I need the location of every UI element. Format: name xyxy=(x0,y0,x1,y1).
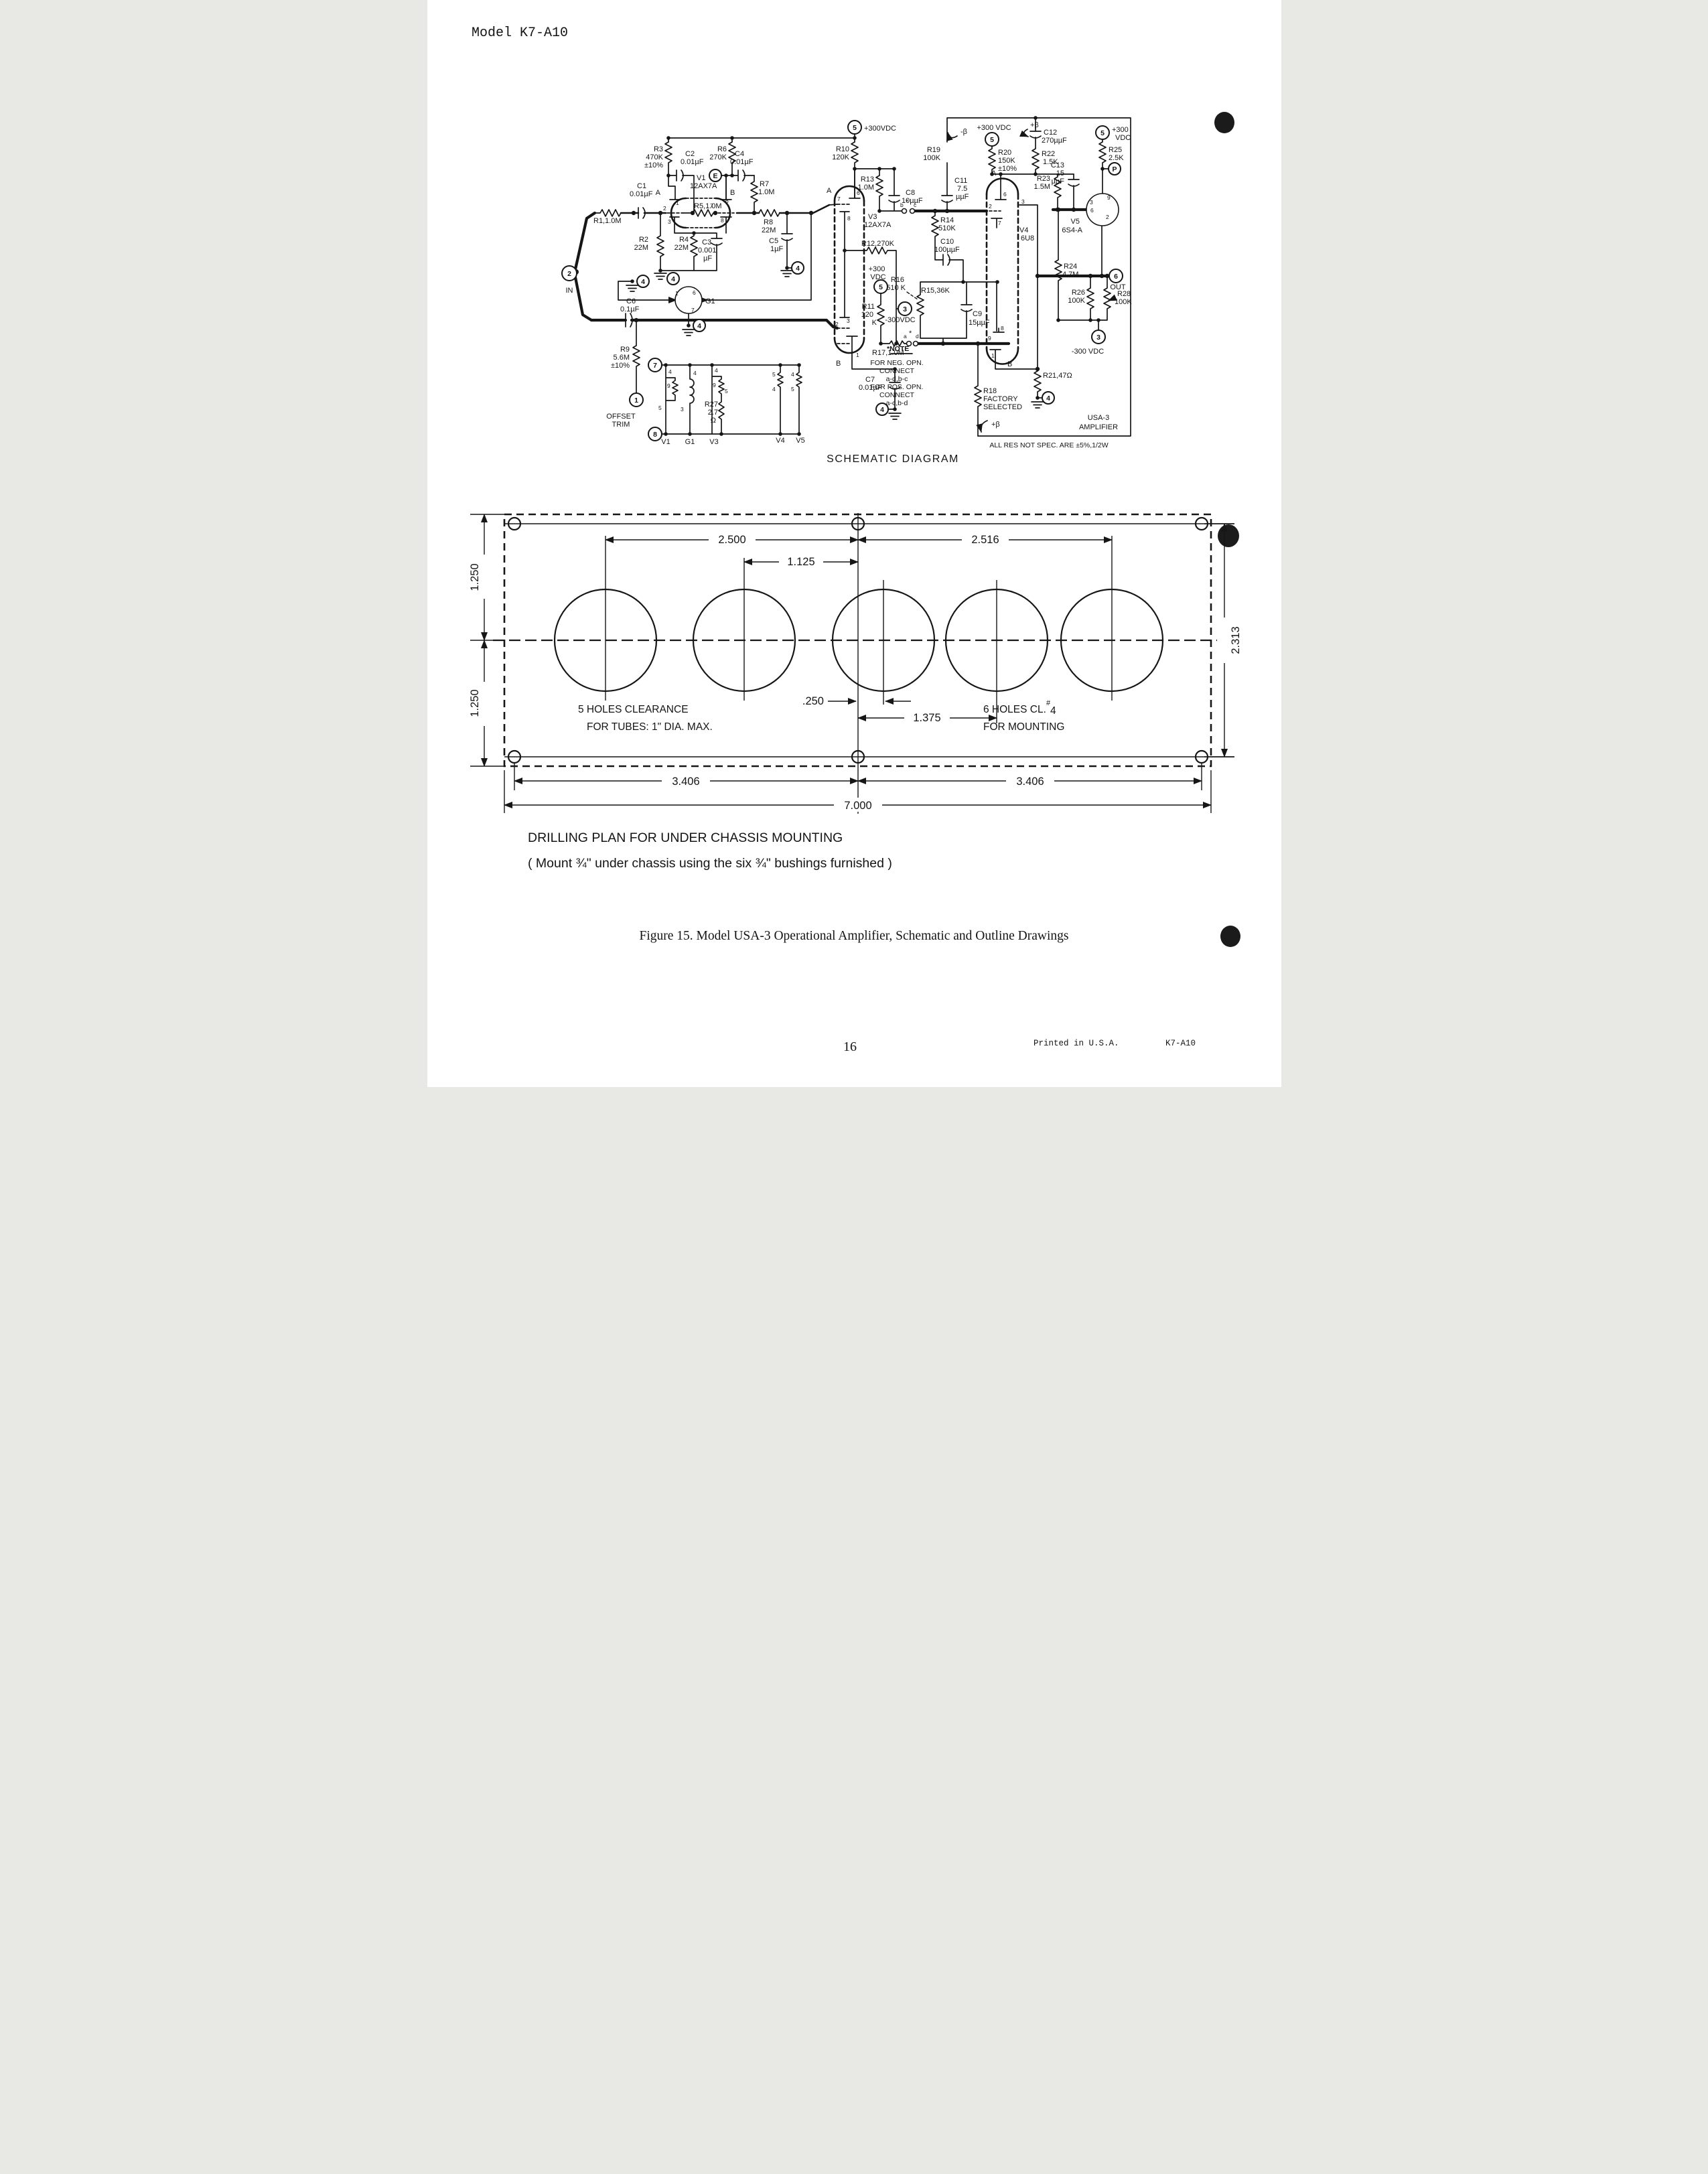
sch-label: C2 xyxy=(685,150,695,158)
dim-label: 1.250 xyxy=(469,563,481,591)
sch-label: R18 xyxy=(983,387,997,395)
sch-label: R23 xyxy=(1036,175,1050,183)
sch-label: C4 xyxy=(735,150,744,158)
sch-label: 15 xyxy=(1056,169,1064,177)
pin-label: 2 xyxy=(835,321,839,328)
spec-note: ALL RES NOT SPEC. ARE ±5%,1/2W xyxy=(989,441,1108,449)
terminal-number: E xyxy=(713,172,717,180)
sch-label: +300VDC xyxy=(864,125,896,133)
sch-label: R26 xyxy=(1071,289,1084,297)
sch-label: VDC xyxy=(870,273,885,281)
sch-label: C6 xyxy=(626,297,636,305)
drilling-title: DRILLING PLAN FOR UNDER CHASSIS MOUNTING xyxy=(528,830,843,845)
sch-label: B xyxy=(730,189,735,197)
note-line: FOR POS. OPN. xyxy=(870,383,923,391)
sch-label: +300 xyxy=(868,265,885,273)
dim-label: 3.406 xyxy=(1016,776,1044,788)
pin-label: B xyxy=(1007,360,1012,368)
dim-label: 2.313 xyxy=(1230,626,1242,654)
sch-label: C10 xyxy=(940,238,954,246)
pin-label: 2 xyxy=(663,205,666,212)
sch-label: 1.0M xyxy=(758,188,774,196)
terminal-number: 5 xyxy=(990,136,994,144)
terminal-number: 4 xyxy=(880,406,884,414)
drilling-subtitle: ( Mount ¾" under chassis using the six ¾… xyxy=(528,856,892,871)
sch-label: 470K xyxy=(646,153,663,161)
terminal-number: 4 xyxy=(697,322,701,330)
sch-label: µµF xyxy=(956,193,969,201)
sch-label: V1 xyxy=(697,174,705,182)
pin-label: B xyxy=(836,360,841,368)
sch-label: R22 xyxy=(1042,150,1055,158)
sch-label: V5 xyxy=(796,437,804,445)
terminal-number: 4 xyxy=(1046,394,1050,403)
sch-label: V1 xyxy=(661,438,670,446)
pin-label: 4 xyxy=(668,368,672,375)
sch-label: C1 xyxy=(637,182,646,190)
drill-note: 6 HOLES CL. xyxy=(983,704,1046,715)
pin-label: 8 xyxy=(847,215,851,222)
sch-label: 510 K xyxy=(886,284,906,292)
sch-label: 15µµF xyxy=(969,319,990,327)
pin-label: 4 xyxy=(693,370,697,376)
sch-label: d xyxy=(916,333,919,340)
sch-label: 0.001 xyxy=(698,246,717,255)
terminal-number: 1 xyxy=(634,396,638,405)
page-header: Model K7-A10 xyxy=(472,25,568,41)
sch-label: 120K xyxy=(832,153,849,161)
sch-label: R1,1.0M xyxy=(593,217,622,225)
sch-label: 0.01µF xyxy=(730,158,754,166)
sch-label: TRIM xyxy=(612,421,630,429)
sch-label: G1 xyxy=(685,438,695,446)
page-number: 16 xyxy=(843,1039,857,1054)
sch-label: +300 xyxy=(1112,126,1129,134)
sch-label: -β xyxy=(960,128,967,136)
terminal-number: 2 xyxy=(567,270,571,278)
punch-hole xyxy=(1214,112,1234,133)
pin-label: 3 xyxy=(1090,199,1093,206)
sch-label: R14 xyxy=(940,216,954,224)
sch-label: 150K xyxy=(998,157,1015,165)
sch-label: R2 xyxy=(638,236,648,244)
sch-label: 120 xyxy=(861,311,873,319)
sch-label: 100K xyxy=(1115,298,1132,306)
sch-label: a xyxy=(904,333,907,340)
pin-label: 2 xyxy=(989,203,992,210)
pin-label: A xyxy=(991,169,997,177)
pin-label: 3 xyxy=(1021,198,1025,205)
doc-code: K7-A10 xyxy=(1165,1039,1196,1048)
sch-label: 1.0M xyxy=(857,184,873,192)
terminal-number: 5 xyxy=(853,124,857,132)
sch-label: 1µF xyxy=(770,245,783,253)
pin-label: 7 xyxy=(998,220,1001,226)
sch-label: C11 xyxy=(954,177,967,185)
pin-label: 5 xyxy=(772,371,776,378)
sch-label: A xyxy=(655,189,660,197)
sch-label: K xyxy=(871,319,877,327)
pin-label: 6 xyxy=(725,198,729,204)
sch-label: 22M xyxy=(674,244,688,252)
sch-label: C12 xyxy=(1044,129,1057,137)
sch-label: R3 xyxy=(653,145,662,153)
sch-label: 0.01µF xyxy=(681,158,704,166)
pin-label: 9 xyxy=(988,335,991,342)
sch-label: C13 xyxy=(1050,161,1064,169)
pin-label: A xyxy=(827,187,832,195)
sch-label: ±10% xyxy=(644,161,662,169)
terminal-number: 4 xyxy=(641,278,645,286)
sch-label: OUT xyxy=(1110,283,1126,291)
pin-label: 9 xyxy=(1107,194,1111,201)
drill-note: 5 HOLES CLEARANCE xyxy=(578,704,689,715)
dim-label: 1.125 xyxy=(787,556,814,568)
sch-label: b xyxy=(900,202,904,208)
pin-label: 4 xyxy=(715,367,718,374)
drill-note: FOR MOUNTING xyxy=(983,721,1064,733)
dim-label: 2.516 xyxy=(971,534,999,546)
pin-label: 4 xyxy=(772,386,776,392)
pin-label: 5 xyxy=(791,386,794,392)
sch-label: 100K xyxy=(923,154,940,162)
sch-label: V3 xyxy=(868,213,877,221)
sch-label: R27 xyxy=(704,401,717,409)
pin-label: 6 xyxy=(1090,207,1094,214)
dim-label: .250 xyxy=(802,695,823,707)
sch-label: 270µµF xyxy=(1042,137,1067,145)
sch-label: 6U8 xyxy=(1021,234,1034,242)
sch-label: R10 xyxy=(835,145,849,153)
terminal-number: 8 xyxy=(653,431,657,439)
pin-label: 1 xyxy=(675,290,679,297)
dim-label: 2.500 xyxy=(718,534,745,546)
sch-label: R6 xyxy=(717,145,726,153)
sch-label: R21,47Ω xyxy=(1043,372,1072,380)
note-line: CONNECT xyxy=(879,391,915,399)
sch-label: 12AX7A xyxy=(864,221,892,229)
sch-label: OFFSET xyxy=(606,413,636,421)
tie-point-c xyxy=(910,209,914,214)
sch-label: V3 xyxy=(709,438,718,446)
sch-label: 6S4-A xyxy=(1062,226,1082,234)
sch-label: C5 xyxy=(769,237,778,245)
sch-label: 22M xyxy=(762,226,776,234)
figure-caption: Figure 15. Model USA-3 Operational Ampli… xyxy=(639,929,1068,943)
terminal-number: 5 xyxy=(879,283,883,291)
sch-label: -300 VDC xyxy=(1071,348,1103,356)
tie-point-d xyxy=(913,342,918,346)
note-title: *NOTE xyxy=(887,345,909,353)
pin-label: 8 xyxy=(1001,325,1004,332)
sch-label: R25 xyxy=(1109,146,1122,154)
pin-label: 7 xyxy=(837,196,841,202)
amplifier-box-label: USA-3 xyxy=(1087,414,1109,422)
sch-label: -300VDC xyxy=(885,316,915,324)
pin-label: 3 xyxy=(668,218,671,225)
terminal-number: P xyxy=(1112,165,1117,173)
sch-label: Ω xyxy=(710,417,715,425)
sch-label: 100K xyxy=(1068,297,1085,305)
sch-label: 12AX7A xyxy=(690,182,717,190)
sch-label: SELECTED xyxy=(983,403,1022,411)
sch-label: V5 xyxy=(1070,218,1079,226)
sch-label: +β xyxy=(991,421,1000,429)
sch-label: R13 xyxy=(860,175,873,184)
terminal-number: 4 xyxy=(671,275,675,283)
drilling-plan: 2.500 2.516 1.125 .250 1.375 1.250 1.250… xyxy=(469,513,1242,871)
note-line: FOR NEG. OPN. xyxy=(870,359,923,367)
sch-label: 10µµF xyxy=(902,197,923,205)
sch-label: 2.7 xyxy=(707,409,717,417)
pin-label: 3 xyxy=(847,317,850,324)
sch-label: * xyxy=(906,198,909,206)
lamp-g1 xyxy=(675,287,702,313)
pin-label: 1 xyxy=(991,352,995,359)
sch-label: 7.5 xyxy=(957,185,967,193)
sch-label: R19 xyxy=(926,146,940,154)
sch-label: R11 xyxy=(861,303,874,311)
sch-label: C3 xyxy=(702,238,711,246)
sch-label: C9 xyxy=(973,310,982,318)
amplifier-box-label: AMPLIFIER xyxy=(1078,423,1117,431)
terminal-number: 3 xyxy=(903,305,907,313)
pin-label: 6 xyxy=(1003,191,1007,198)
punch-hole xyxy=(1220,926,1240,947)
sch-label: R15,36K xyxy=(921,287,950,295)
pin-label: 9 xyxy=(713,382,716,388)
terminal-number: 5 xyxy=(1100,129,1105,137)
sch-label: C8 xyxy=(906,189,915,197)
sch-label: R16 xyxy=(890,276,904,284)
note-line: a-c,b-d xyxy=(885,399,908,407)
sch-label: 5.6M xyxy=(613,354,629,362)
drill-note: 4 xyxy=(1050,705,1056,717)
sch-label: ±10% xyxy=(998,165,1017,173)
dim-label: 1.375 xyxy=(913,712,940,724)
sch-label: * xyxy=(909,330,912,338)
pin-label: 7 xyxy=(691,307,695,313)
note-line: CONNECT xyxy=(879,367,915,375)
sch-label: R12,270K xyxy=(861,240,895,248)
sch-label: R4 xyxy=(679,236,688,244)
terminal-number: 6 xyxy=(1114,273,1118,281)
sch-label: R8 xyxy=(764,218,773,226)
punch-hole xyxy=(1218,524,1239,547)
sch-label: V4 xyxy=(776,437,784,445)
sch-label: R5,1.0M xyxy=(694,202,722,210)
pin-label: 9 xyxy=(667,382,670,389)
dim-label: 1.250 xyxy=(469,689,481,717)
pin-label: 6 xyxy=(857,190,860,196)
printed-note: Printed in U.S.A. xyxy=(1034,1039,1119,1048)
dim-label: 3.406 xyxy=(672,776,699,788)
terminal-number: 7 xyxy=(653,362,657,370)
sch-label: 270K xyxy=(709,153,727,161)
sch-label: 2.5K xyxy=(1109,154,1124,162)
page-svg: Model K7-A10 xyxy=(427,0,1281,1087)
sch-label: +β xyxy=(1030,121,1039,129)
sch-label: 100µµF xyxy=(934,246,960,254)
pin-label: 5 xyxy=(658,405,662,411)
pin-label: 7 xyxy=(710,202,713,209)
sch-label: G1 xyxy=(705,297,715,305)
note-line: a-d,b-c xyxy=(885,375,908,383)
pin-label: 8 xyxy=(721,217,724,224)
pin-label: 3 xyxy=(681,406,684,413)
sch-label: ±10% xyxy=(610,362,629,370)
pin-label: 4 xyxy=(791,371,794,378)
sch-label: 0.1µF xyxy=(620,305,640,313)
pin-label: 6 xyxy=(693,289,696,296)
sch-label: VDC xyxy=(1115,134,1131,142)
sch-label: 4.7M xyxy=(1062,271,1078,279)
tie-point-b xyxy=(902,209,906,214)
sch-label: 0.01µF xyxy=(630,190,653,198)
drill-note: FOR TUBES: 1" DIA. MAX. xyxy=(587,721,713,733)
sch-label: µµF xyxy=(1051,177,1064,186)
schematic-title: SCHEMATIC DIAGRAM xyxy=(827,453,959,465)
sch-label: 510K xyxy=(938,224,956,232)
sch-label: +300 VDC xyxy=(977,124,1011,132)
pin-label: 5 xyxy=(725,388,728,394)
sch-label: V4 xyxy=(1019,226,1028,234)
tube-envelopes xyxy=(671,179,1119,364)
pin-label: 1 xyxy=(676,200,679,206)
document-page: Model K7-A10 xyxy=(427,0,1281,1087)
sch-label: µF xyxy=(703,255,712,263)
dim-label: 7.000 xyxy=(844,800,871,812)
sch-label: R9 xyxy=(620,346,629,354)
terminal-number: 4 xyxy=(796,265,800,273)
sch-label: FACTORY xyxy=(983,395,1018,403)
pin-label: 1 xyxy=(856,352,859,358)
sch-label: IN xyxy=(565,287,573,295)
terminal-number: 3 xyxy=(1096,334,1100,342)
sch-label: 22M xyxy=(634,244,648,252)
pin-label: 2 xyxy=(1106,214,1109,220)
sch-label: R20 xyxy=(998,149,1011,157)
sch-label: R24 xyxy=(1064,263,1077,271)
sch-label: 1.5M xyxy=(1034,183,1050,191)
sch-label: R7 xyxy=(760,180,769,188)
